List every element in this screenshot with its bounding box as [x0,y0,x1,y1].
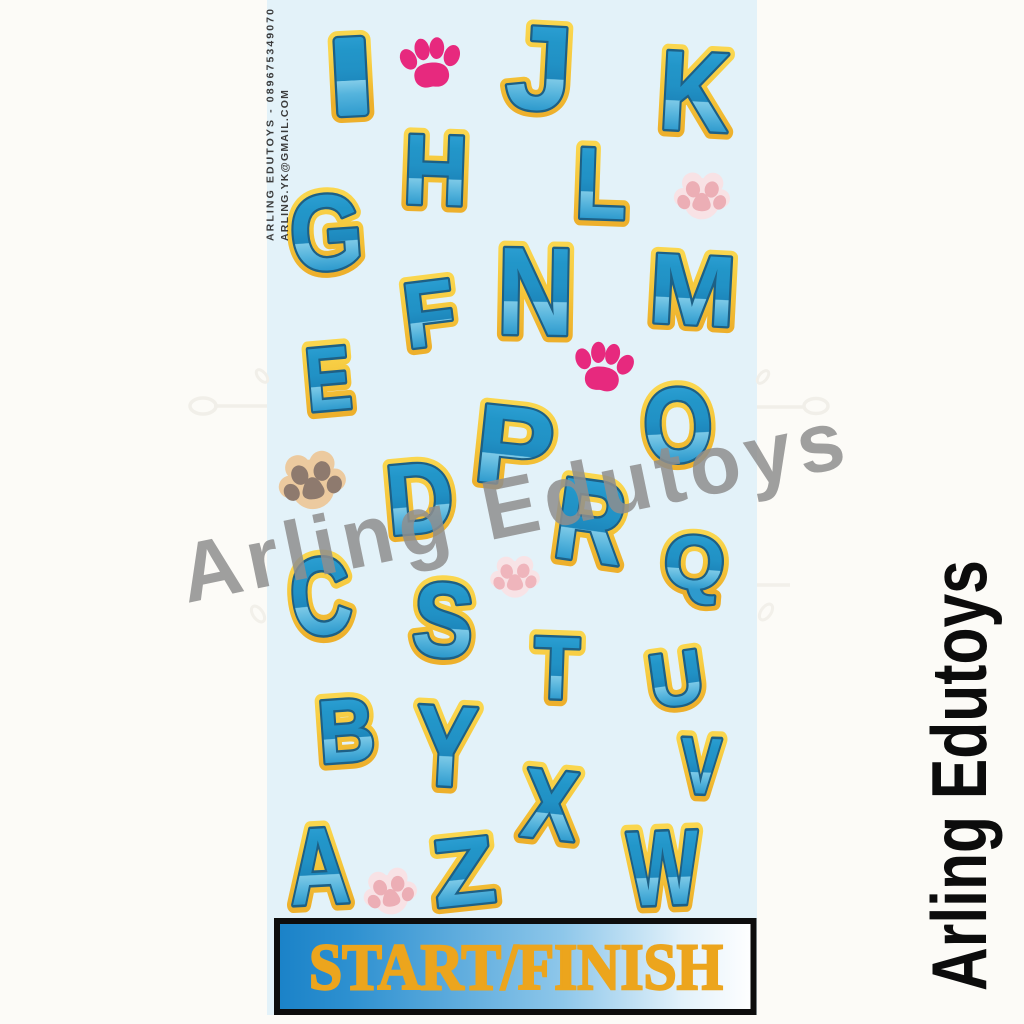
svg-text:G: G [286,171,367,295]
svg-text:E: E [301,327,355,431]
svg-text:Y: Y [412,681,480,812]
svg-text:W: W [626,809,702,929]
svg-text:ARLING.YK@GMAIL.COM: ARLING.YK@GMAIL.COM [279,89,291,241]
svg-text:X: X [517,748,583,863]
svg-text:Arling Edutoys: Arling Edutoys [916,560,1003,991]
svg-text:H: H [401,114,470,228]
svg-text:K: K [656,28,732,157]
svg-text:ARLING EDUTOYS - 089675349070: ARLING EDUTOYS - 089675349070 [265,7,277,241]
svg-text:M: M [646,232,739,348]
svg-text:S: S [409,558,478,681]
svg-text:B: B [315,679,379,783]
svg-text:START/FINISH: START/FINISH [309,931,723,1004]
svg-text:Z: Z [427,815,500,927]
svg-text:Q: Q [661,519,728,607]
svg-text:N: N [496,221,576,362]
svg-text:T: T [532,619,581,719]
svg-text:J: J [503,0,576,137]
svg-text:V: V [679,721,722,812]
svg-text:L: L [574,126,629,241]
svg-text:A: A [286,803,352,928]
